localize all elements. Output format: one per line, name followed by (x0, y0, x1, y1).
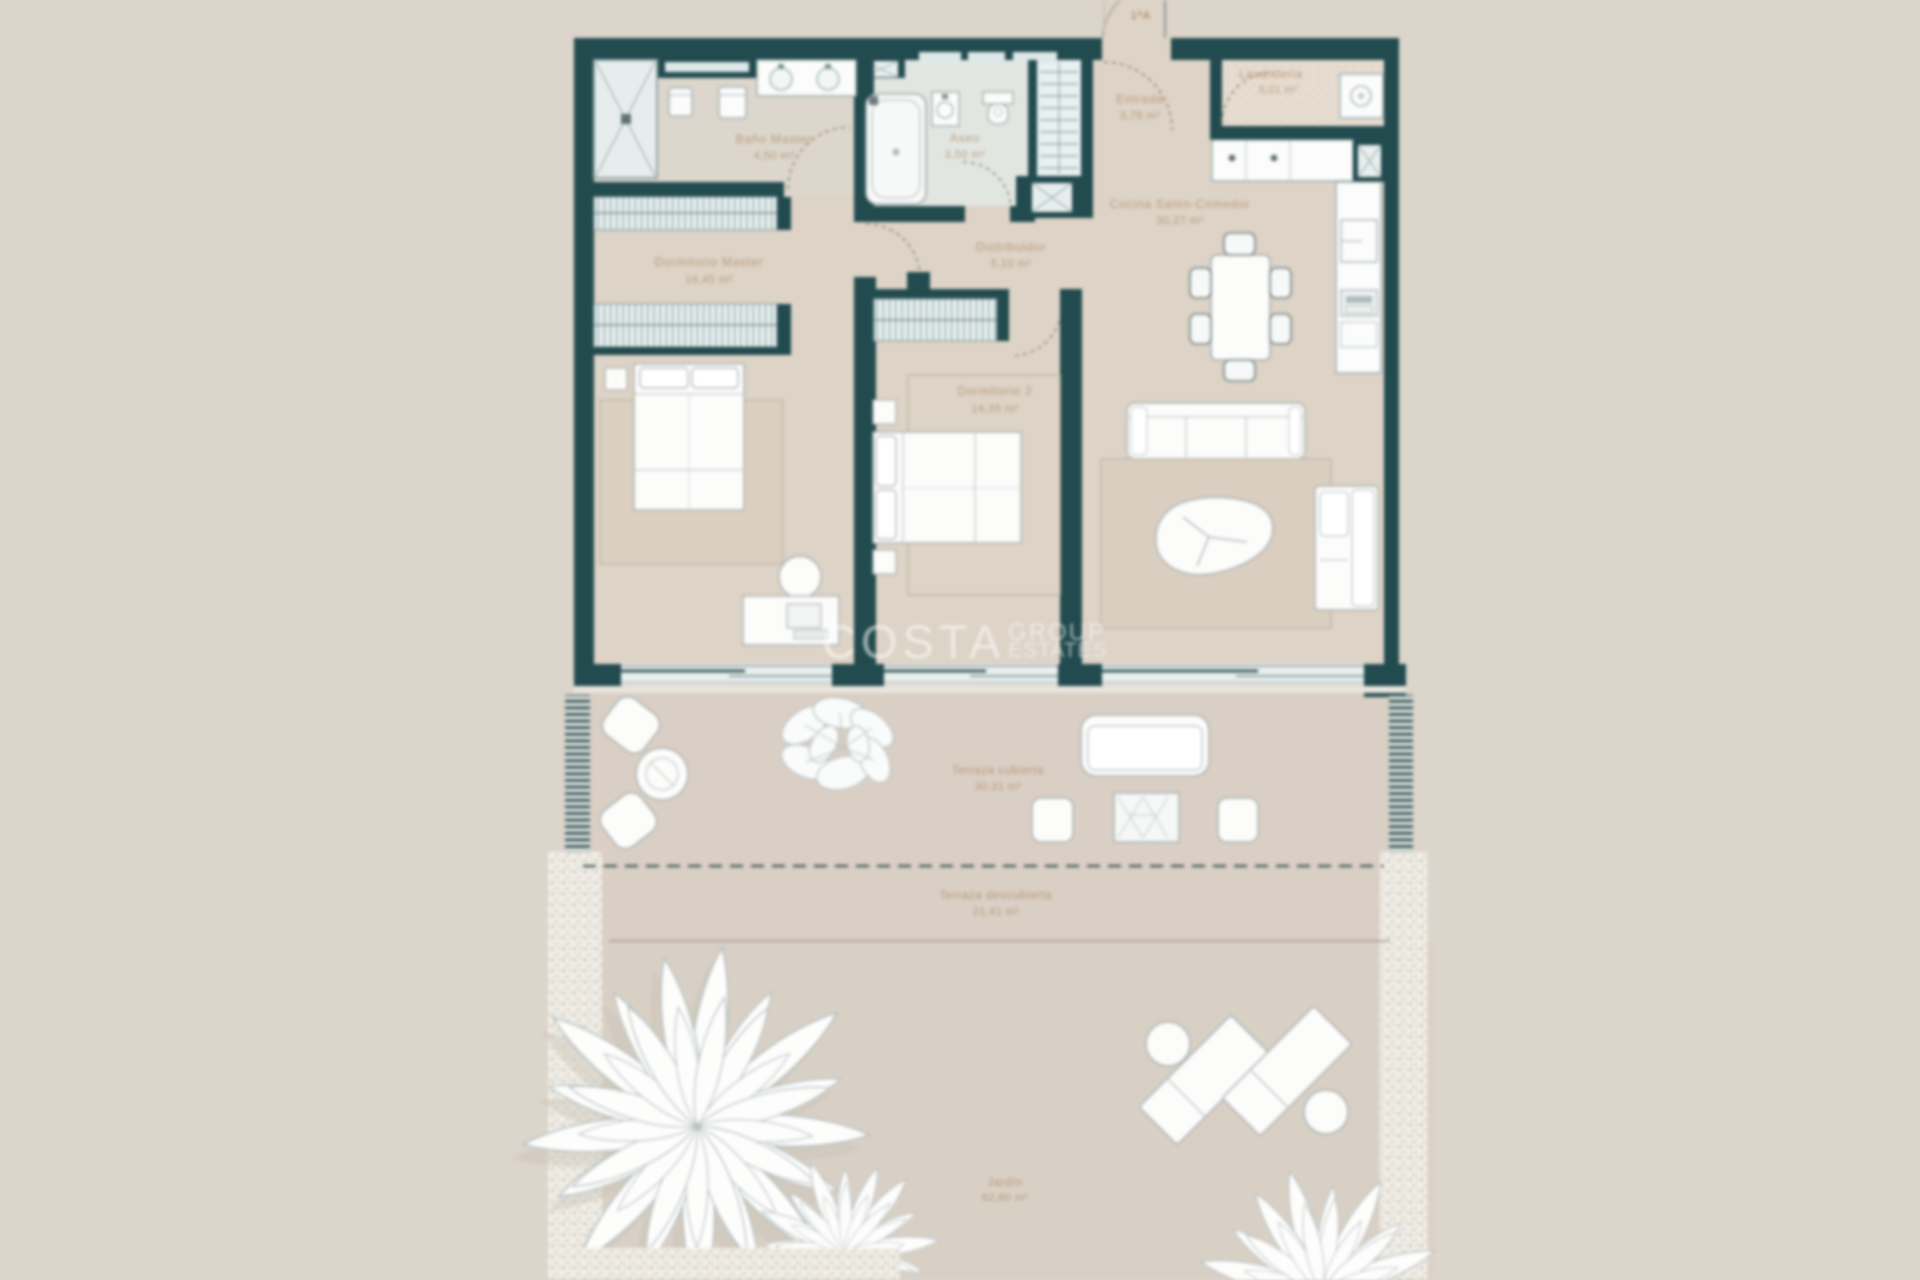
svg-text:4,50 m²: 4,50 m² (754, 150, 795, 162)
svg-text:62,80 m²: 62,80 m² (982, 1192, 1029, 1204)
svg-text:Baño Master: Baño Master (736, 132, 813, 146)
svg-text:1ºA: 1ºA (1131, 10, 1151, 22)
svg-text:Dormitorio Master: Dormitorio Master (655, 255, 764, 269)
svg-text:Entrada: Entrada (1116, 92, 1164, 106)
svg-text:Jardín: Jardín (987, 1177, 1023, 1189)
svg-text:3,50 m²: 3,50 m² (945, 149, 986, 161)
svg-text:21,41 m²: 21,41 m² (973, 906, 1020, 918)
svg-text:5,10 m²: 5,10 m² (991, 258, 1032, 270)
svg-text:Dormitorio 2: Dormitorio 2 (958, 384, 1033, 398)
svg-text:3,78 m²: 3,78 m² (1120, 110, 1161, 122)
svg-text:Terraza descubierta: Terraza descubierta (940, 890, 1052, 902)
svg-text:Terraza cubierta: Terraza cubierta (952, 765, 1044, 777)
svg-text:30,27 m²: 30,27 m² (1156, 215, 1203, 227)
svg-text:COSTA: COSTA (822, 615, 1005, 668)
svg-text:16,45 m²: 16,45 m² (685, 274, 732, 286)
svg-text:Aseo: Aseo (950, 131, 981, 145)
svg-text:30,31 m²: 30,31 m² (975, 781, 1022, 793)
svg-text:Distribuidor: Distribuidor (976, 240, 1046, 254)
svg-text:Lavandería: Lavandería (1239, 69, 1303, 81)
svg-text:Cocina Salón-Comedor: Cocina Salón-Comedor (1110, 197, 1251, 211)
svg-text:3,01 m²: 3,01 m² (1258, 84, 1298, 96)
svg-text:14,35 m²: 14,35 m² (971, 403, 1018, 415)
svg-text:ESTATES: ESTATES (1008, 639, 1108, 662)
